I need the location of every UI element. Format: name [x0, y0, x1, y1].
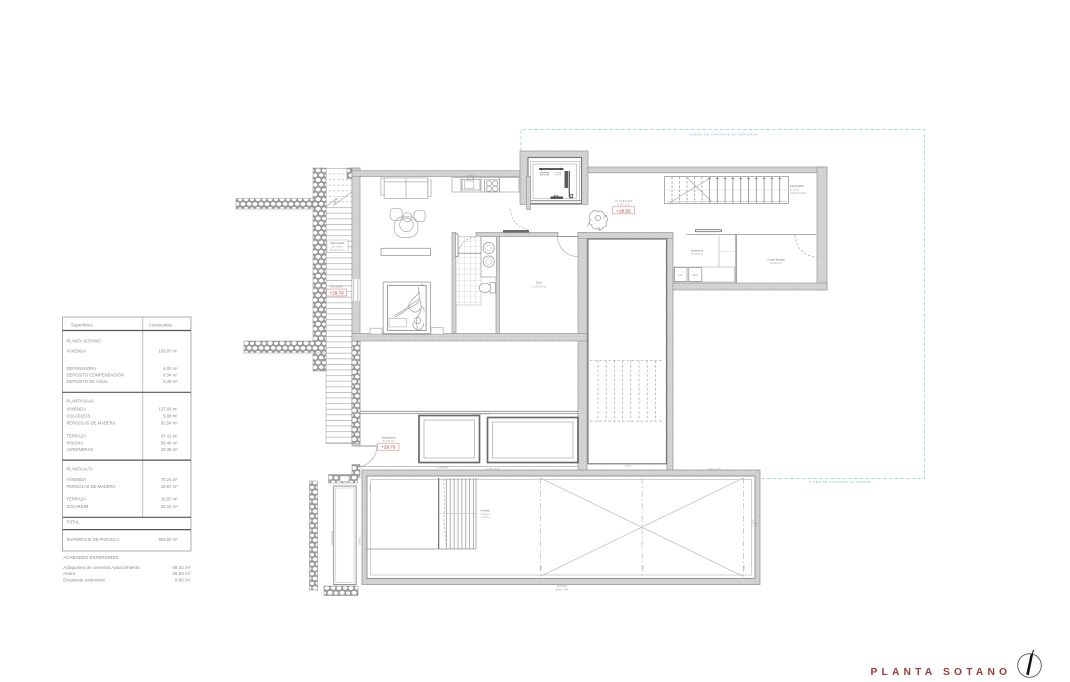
svg-text:PERGOLAS DE MADERA: PERGOLAS DE MADERA [67, 420, 116, 425]
svg-text:Escaleras exteriores: Escaleras exteriores [63, 577, 105, 582]
svg-text:+28.50: +28.50 [616, 208, 631, 213]
svg-text:S: 96.17 m2: S: 96.17 m2 [617, 203, 631, 206]
svg-text:6.10 x 2.30: 6.10 x 2.30 [708, 468, 721, 471]
svg-text:S: 6.00 m2: S: 6.00 m2 [383, 440, 395, 443]
svg-text:VIVIENDA: VIVIENDA [67, 407, 87, 412]
svg-text:0.60 m: 0.60 m [625, 465, 632, 468]
svg-text:58.42 m²: 58.42 m² [172, 565, 191, 570]
svg-text:Superficies: Superficies [71, 322, 94, 327]
svg-text:DEPURADORA: DEPURADORA [67, 366, 97, 371]
svg-text:6.34 m²: 6.34 m² [163, 373, 178, 378]
svg-text:5.98 m²: 5.98 m² [163, 414, 178, 419]
svg-text:V.02: V.02 [756, 522, 759, 527]
svg-text:JARDINERAS: JARDINERAS [67, 447, 94, 452]
svg-text:PERGOLAS DE MADERA: PERGOLAS DE MADERA [67, 484, 116, 489]
svg-text:PISCINA: PISCINA [557, 585, 567, 588]
svg-text:6.00 m²: 6.00 m² [163, 366, 178, 371]
svg-text:JARDINERA: JARDINERA [331, 530, 334, 545]
svg-text:TERRAZA: TERRAZA [67, 496, 87, 501]
svg-text:4.00 m: 4.00 m [369, 485, 372, 492]
svg-text:70.24 m²: 70.24 m² [161, 477, 178, 482]
svg-text:SOLARIUM: SOLARIUM [67, 504, 89, 509]
svg-text:VIVIENDA: VIVIENDA [67, 477, 87, 482]
svg-text:26.63 m²: 26.63 m² [172, 571, 191, 576]
svg-text:Adoquines de cemento Aparcamie: Adoquines de cemento Aparcamiento [63, 565, 140, 570]
svg-text:P.02: P.02 [540, 565, 543, 570]
svg-text:ancho 17.50cm: ancho 17.50cm [790, 192, 806, 195]
svg-text:PLANTA ALTA: PLANTA ALTA [67, 467, 94, 472]
svg-text:DEPOSITO COMPENSACIÓN: DEPOSITO COMPENSACIÓN [67, 373, 124, 378]
svg-text:ESCALERA: ESCALERA [790, 184, 804, 188]
svg-text:LAV.: LAV. [678, 274, 683, 277]
svg-text:ESCALERA: ESCALERA [331, 241, 345, 245]
svg-text:S: 6.19 m2: S: 6.19 m2 [691, 253, 703, 256]
svg-text:TOTAL: TOTAL [67, 520, 81, 525]
svg-text:Gym: Gym [536, 281, 543, 285]
svg-text:PLANTA SOTANO: PLANTA SOTANO [871, 667, 1012, 678]
svg-text:P.03: P.03 [642, 565, 645, 570]
svg-text:SUPERFICIE DE PARCELA:: SUPERFICIE DE PARCELA: [67, 537, 121, 542]
svg-text:S: 6.23 m2: S: 6.23 m2 [770, 262, 782, 265]
svg-text:4.50 x 2.95: 4.50 x 2.95 [487, 468, 500, 471]
svg-text:LINEA DE FACHADA EXTERIOR: LINEA DE FACHADA EXTERIOR [809, 480, 871, 484]
svg-text:16.97 m²: 16.97 m² [161, 496, 178, 501]
svg-text:S: 22.34 m2: S: 22.34 m2 [532, 285, 547, 289]
svg-text:2.30 m: 2.30 m [752, 520, 755, 527]
svg-text:lavandería: lavandería [691, 249, 704, 253]
svg-text:ACERA DE PARADAS EXTERIORES: ACERA DE PARADAS EXTERIORES [689, 133, 758, 137]
svg-text:0.60 m: 0.60 m [359, 538, 362, 545]
svg-text:137.93 m²: 137.93 m² [159, 407, 178, 412]
svg-text:25.02 m²: 25.02 m² [161, 504, 178, 509]
svg-text:105.97 m²: 105.97 m² [159, 349, 178, 354]
svg-text:SEC.: SEC. [693, 274, 699, 277]
svg-text:Cuarto Bodega: Cuarto Bodega [767, 258, 785, 262]
svg-text:c: 30 cm: c: 30 cm [481, 516, 490, 519]
svg-text:dep. 4.50 x 2.50: dep. 4.50 x 2.50 [472, 413, 491, 416]
svg-text:59.40 m²: 59.40 m² [161, 440, 178, 445]
svg-text:DEPOSITO DE AGUA: DEPOSITO DE AGUA [67, 379, 109, 384]
svg-text:Construidas: Construidas [149, 322, 173, 327]
svg-text:9.90 m²: 9.90 m² [175, 577, 191, 582]
svg-text:8.00 x 3.00: 8.00 x 3.00 [556, 588, 569, 591]
svg-text:TERRAZA: TERRAZA [67, 434, 87, 439]
svg-text:803.00 m²: 803.00 m² [159, 537, 178, 542]
svg-text:Acera: Acera [63, 571, 75, 576]
svg-text:VOLADIZOS: VOLADIZOS [67, 414, 91, 419]
svg-text:A 1.00 A: A 1.00 A [331, 285, 342, 289]
svg-text:+29.70: +29.70 [329, 291, 344, 296]
svg-text:+29.70: +29.70 [381, 445, 396, 450]
svg-text:9.48 m²: 9.48 m² [163, 379, 178, 384]
svg-text:PISCINA: PISCINA [67, 440, 84, 445]
svg-text:19.67 m²: 19.67 m² [161, 484, 178, 489]
svg-text:62.54 m²: 62.54 m² [161, 420, 178, 425]
svg-text:VIVIENDA: VIVIENDA [67, 349, 87, 354]
svg-text:P.04: P.04 [743, 565, 746, 570]
svg-text:PLANTA BAJA: PLANTA BAJA [67, 399, 95, 404]
svg-text:PLANTA SOTANO: PLANTA SOTANO [67, 339, 102, 344]
svg-text:33.35 m²: 33.35 m² [161, 447, 178, 452]
svg-text:97.41 m²: 97.41 m² [161, 434, 178, 439]
svg-text:ACABADOS EXTERIORES: ACABADOS EXTERIORES [63, 555, 118, 560]
svg-text:18 h x 17.5 cm: 18 h x 17.5 cm [330, 249, 346, 252]
svg-text:A LIMPIAR: A LIMPIAR [436, 467, 448, 470]
